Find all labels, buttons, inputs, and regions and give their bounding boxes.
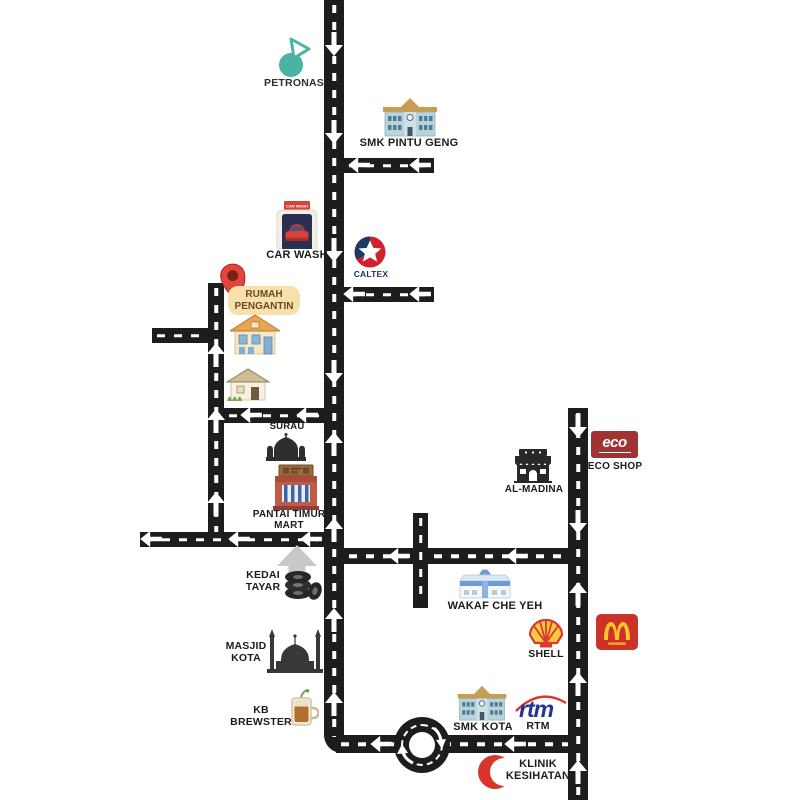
road-cross-short-vertical [413, 513, 428, 608]
traffic-arrow-left [348, 157, 371, 173]
roundabout [394, 717, 450, 773]
traffic-arrow-down [325, 118, 343, 144]
traffic-arrow-down [569, 508, 587, 534]
traffic-arrow-up [325, 432, 343, 458]
smk-pintu-geng-label: SMK PINTU GENG [360, 137, 459, 149]
car-wash-label: CAR WASH [266, 249, 328, 261]
mcdonalds-logo-icon [596, 614, 638, 650]
small-house-icon [226, 366, 270, 402]
destination-label-line1: RUMAH [245, 289, 282, 300]
traffic-arrow-up [569, 582, 587, 608]
traffic-arrow-left [388, 548, 411, 564]
traffic-arrow-up [569, 672, 587, 698]
eco-shop-logo: eco [591, 431, 638, 458]
school-icon-smk-kota [456, 685, 508, 721]
traffic-arrow-left [504, 736, 527, 752]
big-house-icon [230, 313, 280, 355]
masjid-kota-mosque-icon [265, 627, 325, 673]
roundabout-flow-arrows [394, 717, 450, 773]
destination-label-line2: PENGANTIN [235, 301, 294, 312]
svg-text:CAR WASH: CAR WASH [286, 203, 308, 208]
caltex-logo-icon [354, 236, 386, 268]
shell-logo-icon [528, 616, 564, 648]
kb-brewster-label: KB BREWSTER [230, 705, 292, 728]
al-madina-label: AL-MADINA [505, 484, 563, 495]
traffic-arrow-up [325, 518, 343, 544]
petronas-logo-icon [276, 36, 314, 80]
traffic-arrow-up [207, 492, 225, 518]
tyre-stack-icon [284, 567, 322, 601]
svg-text:rtm: rtm [519, 696, 554, 721]
traffic-arrow-up [569, 760, 587, 786]
rtm-label: RTM [526, 721, 549, 733]
kedai-tayar-label: KEDAI TAYAR [246, 570, 280, 593]
traffic-arrow-up [325, 692, 343, 718]
traffic-arrow-left [506, 548, 529, 564]
surau-mosque-icon [266, 432, 306, 462]
traffic-arrow-left [240, 407, 263, 423]
destination-label-bubble: RUMAH PENGANTIN [228, 286, 300, 315]
petronas-label: PETRONAS [264, 78, 324, 90]
al-madina-shop-icon [513, 449, 553, 483]
caltex-label: CALTEX [354, 270, 389, 279]
masjid-kota-label: MASJID KOTA [226, 641, 267, 664]
surau-label: SURAU [270, 422, 305, 432]
rtm-logo-icon: rtm [512, 693, 568, 721]
school-icon-smk-pintu-geng [382, 97, 438, 137]
shell-label: SHELL [528, 649, 563, 661]
traffic-arrow-left [140, 531, 163, 547]
traffic-arrow-left [409, 157, 432, 173]
traffic-arrow-down [325, 30, 343, 56]
pantai-timur-mart-label: PANTAI TIMUR MART [253, 509, 326, 531]
eco-shop-logo-text: eco [602, 436, 626, 450]
traffic-arrow-down [325, 358, 343, 384]
traffic-arrow-up [207, 343, 225, 369]
traffic-arrow-up [325, 608, 343, 634]
traffic-arrow-left [343, 286, 366, 302]
traffic-arrow-up [207, 409, 225, 435]
traffic-arrow-left [228, 531, 251, 547]
traffic-arrow-left [370, 736, 393, 752]
traffic-arrow-left [409, 286, 432, 302]
wakaf-che-yeh-label: WAKAF CHE YEH [448, 600, 543, 612]
traffic-arrow-down [569, 412, 587, 438]
road-wakaf-east [344, 548, 570, 564]
coffee-cup-icon [287, 689, 319, 729]
wakaf-che-yeh-building-icon [458, 567, 512, 600]
klinik-kesihatan-label: KLINIK KESIHATAN [506, 758, 570, 782]
road-stub-west [152, 328, 208, 343]
direction-map: PETRONAS SMK PINTU GENG CAR WASH CAR WAS… [0, 0, 800, 800]
car-wash-icon: CAR WASH [274, 201, 320, 249]
pantai-timur-mart-icon [270, 464, 322, 510]
smk-kota-label: SMK KOTA [453, 721, 512, 733]
eco-shop-label: ECO SHOP [588, 461, 642, 472]
